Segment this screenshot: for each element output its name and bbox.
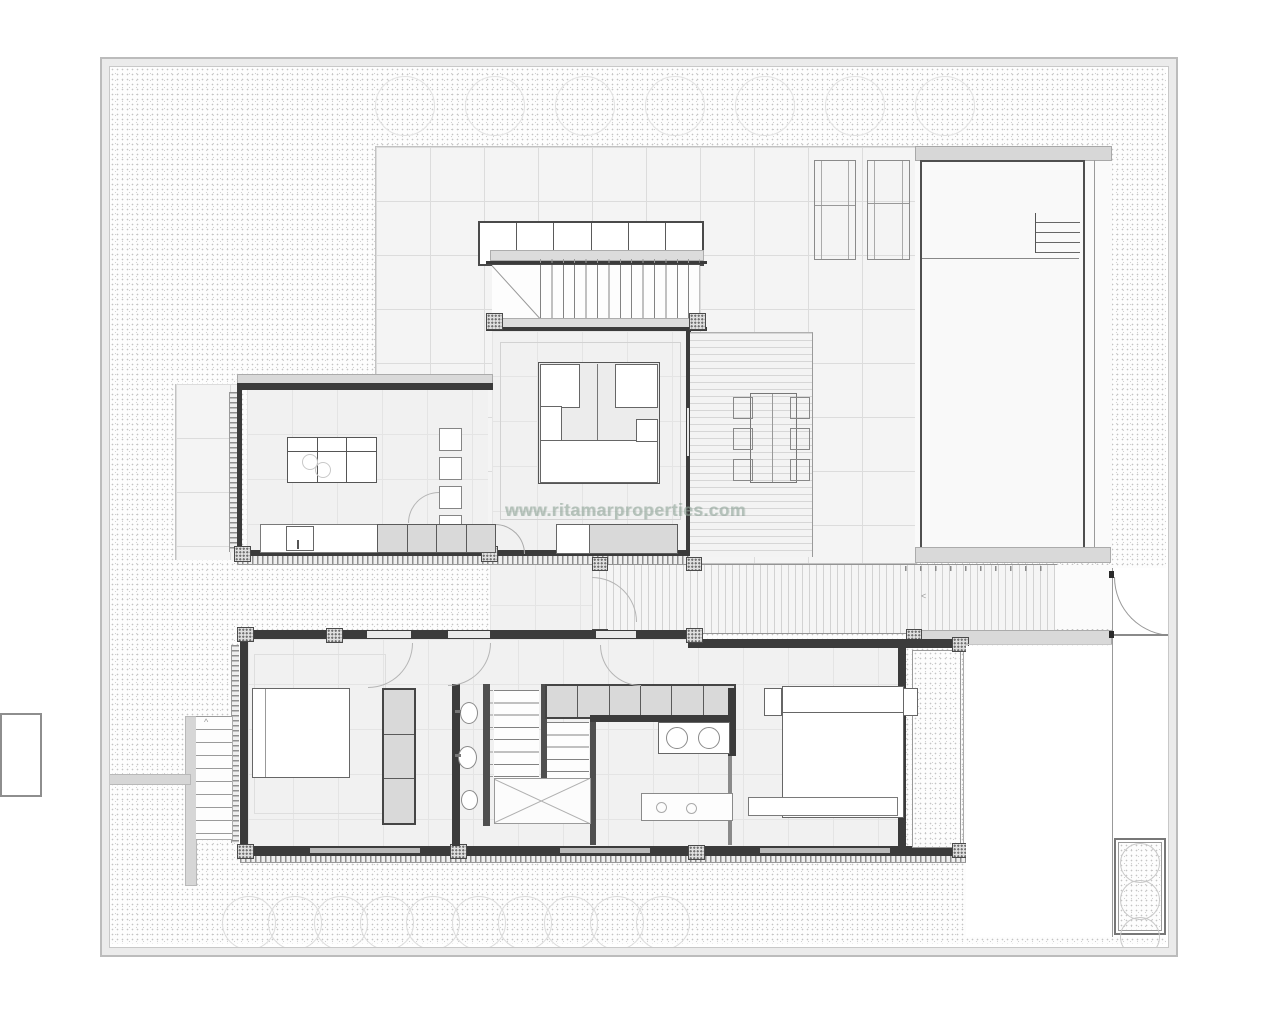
lounger-rail xyxy=(874,161,875,259)
sofa-module xyxy=(540,364,580,408)
wall-insulation-band xyxy=(229,392,237,552)
wardrobe-cell xyxy=(547,686,578,717)
drain xyxy=(656,802,667,813)
tree-circle xyxy=(915,76,975,136)
entry-court-tiles xyxy=(490,560,592,632)
cabinet-cell xyxy=(467,525,496,552)
lounger-rail xyxy=(902,161,903,259)
column-block xyxy=(237,844,254,859)
tree-circle xyxy=(375,76,435,136)
wardrobe-band xyxy=(545,684,736,719)
bathroom-sink xyxy=(460,702,478,724)
shrub-row xyxy=(222,896,682,948)
chair xyxy=(733,459,753,481)
kitchen-cabinets xyxy=(377,524,496,553)
pool-edge-band xyxy=(915,547,1111,563)
cabinet-cell xyxy=(408,525,438,552)
gate-post xyxy=(1109,571,1114,578)
lounger-backrest-line xyxy=(815,205,855,206)
deck-chairs-right xyxy=(790,397,810,481)
island-divider xyxy=(288,451,376,452)
corner-planter xyxy=(1114,838,1166,935)
column-block xyxy=(234,546,251,562)
chair xyxy=(733,397,753,419)
wardrobe-cell xyxy=(641,686,672,717)
lounger-backrest-line xyxy=(868,203,909,204)
sofa-module xyxy=(636,419,658,442)
kitchen-left-wall xyxy=(237,390,242,552)
nightstand xyxy=(764,688,782,716)
pool-shallow-line xyxy=(922,258,1079,259)
kitchen-island xyxy=(287,437,377,483)
vanity-sink xyxy=(666,727,688,749)
deck-chairs-left xyxy=(733,397,753,481)
wardrobe-cell xyxy=(672,686,703,717)
sink-tap xyxy=(297,540,299,549)
stair-step-numbers xyxy=(540,259,700,263)
chair xyxy=(439,486,462,509)
kitchen-sink xyxy=(286,526,314,551)
stair-step-numbers xyxy=(490,690,493,778)
bedroom-bottom-wall xyxy=(240,846,968,856)
window-glazing xyxy=(310,848,420,853)
plant-circle xyxy=(1120,880,1160,920)
column-block xyxy=(237,627,254,642)
wall-insulation-band xyxy=(237,556,498,565)
walkway-step-ticks xyxy=(905,566,1055,571)
stair-landing-top xyxy=(492,265,541,318)
door-opening xyxy=(367,631,411,638)
cabinet-box xyxy=(556,524,590,554)
pool-outer-wall-line xyxy=(1094,160,1095,558)
tree-circle xyxy=(645,76,705,136)
chair xyxy=(439,457,462,480)
island-divider xyxy=(346,438,347,482)
column-block xyxy=(686,557,702,571)
pool-coping xyxy=(915,146,1112,161)
chair xyxy=(733,428,753,450)
pillow-line xyxy=(265,689,266,777)
fixture-tap xyxy=(455,754,461,757)
column-block xyxy=(326,628,343,643)
door-opening xyxy=(448,631,490,638)
tree-circle xyxy=(825,76,885,136)
planter-edge-line xyxy=(963,648,964,848)
plant-circle xyxy=(1120,843,1160,883)
side-yard-paving xyxy=(966,646,1112,937)
direction-chevron: < xyxy=(921,592,926,601)
column-block xyxy=(689,313,706,330)
entry-court xyxy=(1055,565,1113,629)
ensuite-top-wall xyxy=(590,715,732,722)
interior-stair-flight xyxy=(494,690,539,778)
cooktop-burner xyxy=(315,462,331,478)
table-divider xyxy=(772,394,773,482)
bathroom-wall xyxy=(483,684,490,826)
tree-circle xyxy=(465,76,525,136)
planter-plants xyxy=(1118,842,1162,931)
kitchen-counter xyxy=(260,524,379,553)
tree-circle xyxy=(735,76,795,136)
gate-post xyxy=(1109,631,1114,638)
garden-wall xyxy=(109,774,191,785)
plot-interior: < xyxy=(109,66,1169,948)
toilet xyxy=(458,746,477,769)
closet-cell xyxy=(384,690,414,735)
closet-cell xyxy=(384,779,414,823)
bedroom-left-wall xyxy=(240,639,248,846)
stair-landing xyxy=(494,778,591,824)
entry-stair-treads xyxy=(540,265,700,318)
tv-credenza xyxy=(588,524,678,554)
closet-shelves xyxy=(382,688,416,825)
partition-wall xyxy=(452,684,460,846)
column-block xyxy=(686,628,703,643)
sun-lounger xyxy=(814,160,856,260)
column-block xyxy=(486,313,503,330)
wall-insulation-band xyxy=(240,856,968,863)
tree-canopy-row xyxy=(375,76,975,136)
door-opening xyxy=(596,631,636,638)
window-glazing xyxy=(560,848,650,853)
chair xyxy=(790,397,810,419)
wardrobe-cell xyxy=(610,686,641,717)
drain xyxy=(686,803,697,814)
interior-stair-flight xyxy=(547,722,589,778)
bedroom-top-wall xyxy=(688,639,968,648)
sliding-door-gap xyxy=(687,408,689,456)
closet-cell xyxy=(384,735,414,780)
floor-plan-canvas: < xyxy=(0,0,1280,1024)
landing-diagonal xyxy=(495,779,591,824)
shrub-circle xyxy=(636,896,690,948)
watermark-text: www.ritamarproperties.com xyxy=(505,500,746,521)
column-block xyxy=(688,845,705,860)
bedroom-bed xyxy=(252,688,350,778)
bedroom-top-wall xyxy=(240,630,698,639)
gate-leaf xyxy=(1114,634,1169,636)
cabinet-cell xyxy=(437,525,467,552)
pool-steps xyxy=(1035,213,1080,253)
lounger-rail xyxy=(848,161,849,259)
vanity-sink xyxy=(698,727,720,749)
chair xyxy=(439,428,462,451)
sofa-divider-line xyxy=(597,364,598,440)
sofa-module xyxy=(540,440,658,483)
shower-tray xyxy=(641,793,733,821)
sun-lounger xyxy=(867,160,910,260)
tree-circle xyxy=(555,76,615,136)
column-block xyxy=(592,557,608,571)
column-block xyxy=(450,844,467,859)
landing-diagonal xyxy=(492,265,540,318)
side-planter-strip xyxy=(912,650,961,848)
lounger-rail xyxy=(821,161,822,259)
fixture-tap xyxy=(455,710,461,713)
window-glazing xyxy=(760,848,890,853)
plant-circle xyxy=(1120,917,1160,948)
bidet xyxy=(461,790,478,810)
kitchen-top-wall xyxy=(237,383,493,390)
dining-chairs xyxy=(439,428,489,538)
bed-bench xyxy=(748,797,898,816)
walkway-deck xyxy=(592,564,1057,634)
wardrobe-cell xyxy=(578,686,609,717)
yard-edge-line xyxy=(966,644,1112,645)
chair xyxy=(790,428,810,450)
sofa-module xyxy=(540,406,562,442)
chair xyxy=(790,459,810,481)
outbuilding-box xyxy=(0,713,42,797)
sofa-module xyxy=(615,364,658,408)
garden-stair-treads xyxy=(196,716,233,840)
plot-boundary: < xyxy=(100,57,1178,957)
master-bed-headboard xyxy=(782,686,904,714)
cabinet-cell xyxy=(378,525,408,552)
direction-chevron: ^ xyxy=(204,718,208,727)
